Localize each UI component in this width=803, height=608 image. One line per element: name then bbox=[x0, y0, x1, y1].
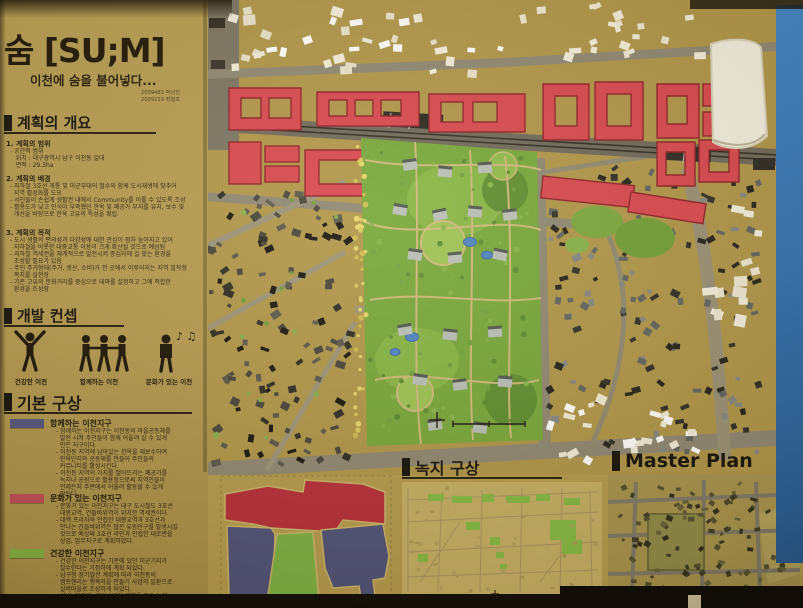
person-arms-up-icon bbox=[16, 332, 44, 370]
site-model-photo bbox=[205, 0, 777, 475]
credit-line: 2009483 박남진 bbox=[118, 90, 180, 97]
author-credits: 2009483 박남진 2009219 최형조 bbox=[118, 90, 180, 104]
section-overview-header: 계획의 개요 bbox=[4, 112, 91, 133]
model-plate-seam bbox=[203, 0, 207, 472]
header-underline bbox=[4, 132, 156, 134]
concept-label-culture: 문화가 있는 이천 bbox=[134, 376, 204, 386]
header-underline bbox=[4, 325, 124, 327]
header-underline bbox=[4, 412, 192, 414]
section-overview-title: 계획의 개요 bbox=[17, 112, 91, 133]
page-title: 숨 [SU;M] bbox=[4, 24, 204, 72]
photo-shadow-top bbox=[0, 0, 232, 18]
zone-together-blue-left bbox=[227, 526, 275, 598]
header-bar-icon bbox=[612, 451, 620, 471]
master-plan-park bbox=[648, 514, 704, 570]
section-concept-header: 개발 컨셉 bbox=[4, 305, 77, 326]
legend-swatch-healthy bbox=[10, 549, 44, 558]
section-basic-plan-header: 기본 구상 bbox=[4, 390, 81, 414]
concept-pictograms: ♪ ♫ bbox=[6, 330, 202, 374]
three-people-icon bbox=[81, 335, 127, 370]
section-green-plan-header: 녹지 구상 bbox=[402, 455, 479, 479]
legend-swatch-culture bbox=[10, 494, 44, 503]
photo-shadow-top-right bbox=[690, 0, 803, 9]
person-music-icon: ♪ ♫ bbox=[160, 330, 196, 371]
concept-label-healthy: 건강한 이천 bbox=[2, 376, 60, 386]
zone-culture-red bbox=[225, 480, 385, 532]
section-master-plan-title: Master Plan bbox=[625, 450, 753, 472]
section-green-plan-title: 녹지 구상 bbox=[415, 455, 479, 479]
background-wall bbox=[776, 5, 803, 563]
music-notes-glyph: ♪ ♫ bbox=[176, 330, 196, 343]
curled-paper bbox=[711, 40, 767, 148]
legend-body-together: - 함께하는 이천지구는 이천동의 마을공동체를 발전 시켜 주민들이 함께 어… bbox=[56, 429, 206, 499]
section-basic-plan-title: 기본 구상 bbox=[17, 390, 81, 414]
legend-body-culture: - 문화가 있는 이천지구는 대구 도시철도 3호선 대봉교역, 건들바위역이 … bbox=[56, 504, 206, 546]
central-park bbox=[352, 138, 543, 446]
photo-shadow-left bbox=[0, 0, 6, 608]
overview-item-3-body: - 도시 생활의 편의성과 다양성에 대한 관심이 점차 높아지고 있어 지하철… bbox=[10, 238, 206, 294]
header-underline bbox=[402, 477, 562, 479]
green-space-plan-map bbox=[400, 482, 606, 600]
overview-item-2-body: - 지하철 3호선 개통 및 미군부대의 철수와 함께 도시재생에 맞추어 지역… bbox=[10, 184, 206, 219]
section-concept-title: 개발 컨셉 bbox=[17, 305, 77, 326]
board-edge-tab bbox=[688, 595, 701, 608]
page-subtitle: 이천에 숨을 불어넣다... bbox=[30, 70, 200, 89]
table-shadow-bottom-right bbox=[560, 586, 803, 608]
header-bar-icon bbox=[402, 458, 410, 476]
zone-together-blue-right bbox=[321, 524, 389, 598]
master-plan-map bbox=[608, 474, 800, 594]
left-text-panel: 숨 [SU;M] 이천에 숨을 불어넣다... 2009483 박남진 2009… bbox=[0, 0, 208, 608]
section-master-plan-header: Master Plan bbox=[612, 450, 753, 472]
credit-line: 2009219 최형조 bbox=[118, 97, 180, 104]
legend-swatch-together bbox=[10, 419, 44, 428]
zoning-concept-map bbox=[213, 468, 398, 606]
presentation-board-photo: 숨 [SU;M] 이천에 숨을 불어넣다... 2009483 박남진 2009… bbox=[0, 0, 803, 608]
overview-item-1-body: - 공간적 범위 위치 : 대구광역시 남구 이천동 일대 면적 : 29.3h… bbox=[10, 149, 202, 170]
concept-label-together: 함께하는 이천 bbox=[66, 376, 132, 386]
